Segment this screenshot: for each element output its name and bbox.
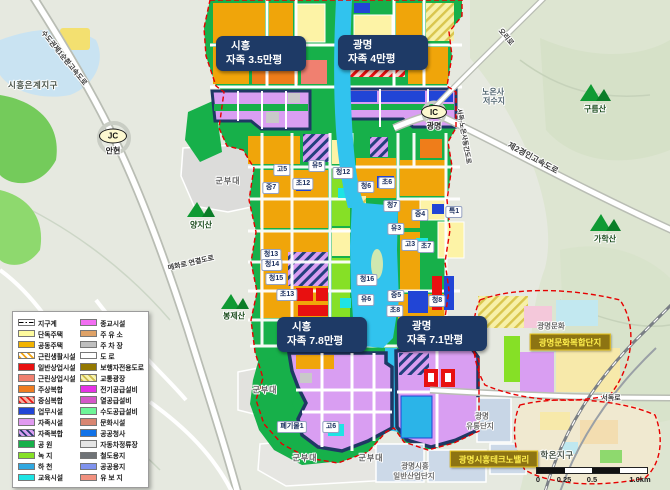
legend-swatch bbox=[18, 319, 35, 327]
legend-item: 근린상업시설 bbox=[18, 372, 76, 383]
legend-label: 지구계 bbox=[38, 318, 57, 328]
legend-item: 보행자전용도로 bbox=[80, 361, 144, 372]
zone-label: 청12 bbox=[332, 167, 353, 179]
junction-badge-jc: JC bbox=[99, 129, 127, 144]
legend-item: 교통광장 bbox=[80, 372, 144, 383]
legend-swatch bbox=[80, 407, 97, 415]
legend-item: 자동차정류장 bbox=[80, 439, 144, 450]
legend-item: 공공청사 bbox=[80, 428, 144, 439]
zone-label: 초13 bbox=[276, 289, 297, 301]
mountain-name: 가학산 bbox=[594, 234, 616, 245]
callout-city: 시흥 bbox=[292, 320, 357, 334]
legend-label: 공공청사 bbox=[100, 428, 125, 438]
zone-label: 유3 bbox=[387, 223, 404, 235]
callout-city: 광명 bbox=[412, 319, 477, 333]
legend-panel: 지구계 단독주택 공동주택 근린생활시설 일반상업시설 근린상업시설 주상복합 … bbox=[12, 311, 149, 488]
callout-city: 시흥 bbox=[231, 39, 296, 53]
legend-swatch bbox=[18, 396, 35, 404]
legend-item: 주 유 소 bbox=[80, 328, 144, 339]
zone-label: 초12 bbox=[292, 178, 313, 190]
legend-label: 자족시설 bbox=[38, 417, 63, 427]
zone-label: 유5 bbox=[308, 160, 325, 172]
zone-label: 초8 bbox=[386, 305, 403, 317]
legend-label: 자동차정류장 bbox=[100, 439, 138, 449]
place-label-culture: 광명문화 bbox=[537, 321, 565, 332]
legend-label: 철도용지 bbox=[100, 450, 125, 460]
legend-label: 보행자전용도로 bbox=[100, 362, 144, 372]
legend-label: 전기공급설비 bbox=[100, 384, 138, 394]
map-canvas: 고5 유5 청12 중7 초12 청6 초6 청7 중4 특1 유3 고3 초7… bbox=[0, 0, 670, 490]
zone-label: 중7 bbox=[262, 182, 279, 194]
scale-segment bbox=[565, 468, 593, 473]
scale-segment bbox=[620, 468, 648, 473]
place-label-logistics: 유통단지 bbox=[466, 421, 494, 432]
legend-swatch bbox=[18, 429, 35, 437]
zone-label: 청7 bbox=[383, 200, 400, 212]
legend-swatch bbox=[18, 330, 35, 338]
legend-swatch bbox=[80, 429, 97, 437]
legend-item: 유 보 지 bbox=[80, 472, 144, 483]
zone-label: 고5 bbox=[273, 164, 290, 176]
legend-label: 유 보 지 bbox=[100, 472, 123, 482]
legend-swatch bbox=[80, 363, 97, 371]
legend-label: 단독주택 bbox=[38, 329, 63, 339]
legend-swatch bbox=[80, 352, 97, 360]
callout-city: 광명 bbox=[353, 38, 418, 52]
place-label-military: 군부대 bbox=[292, 453, 317, 464]
legend-swatch bbox=[18, 418, 35, 426]
legend-item: 수도공급설비 bbox=[80, 406, 144, 417]
legend-item: 철도용지 bbox=[80, 450, 144, 461]
road-label-seodok-ro: 서독로 bbox=[601, 393, 620, 403]
legend-column-left: 지구계 단독주택 공동주택 근린생활시설 일반상업시설 근린상업시설 주상복합 … bbox=[18, 317, 76, 483]
zone-label: 초6 bbox=[378, 177, 395, 189]
legend-column-right: 종교시설 주 유 소 주 차 장 도 로 보행자전용도로 교통광장 전기공급설비… bbox=[80, 317, 144, 483]
zone-label: 특1 bbox=[445, 206, 462, 218]
zone-label: 고3 bbox=[401, 239, 418, 251]
zone-label: 중4 bbox=[411, 209, 428, 221]
legend-label: 녹 지 bbox=[38, 450, 52, 460]
legend-label: 도 로 bbox=[100, 351, 114, 361]
legend-swatch bbox=[80, 463, 97, 471]
legend-item: 하 천 bbox=[18, 461, 76, 472]
place-label-hakon: 학온지구 bbox=[540, 449, 573, 461]
legend-label: 종교시설 bbox=[100, 318, 125, 328]
legend-item: 전기공급설비 bbox=[80, 383, 144, 394]
legend-item: 일반상업시설 bbox=[18, 361, 76, 372]
zone-label: 청14 bbox=[261, 259, 282, 271]
callout-area: 자족 4만평 bbox=[348, 52, 418, 66]
legend-label: 근린상업시설 bbox=[38, 373, 76, 383]
legend-item: 공 원 bbox=[18, 439, 76, 450]
scale-label: 1.0km bbox=[629, 475, 650, 484]
legend-item: 중심복합 bbox=[18, 394, 76, 405]
scale-segment bbox=[537, 468, 565, 473]
callout-area: 자족 3.5만평 bbox=[226, 53, 296, 67]
legend-swatch bbox=[80, 374, 97, 382]
scale-label: 0 bbox=[536, 475, 540, 484]
badge-techno-valley: 광명시흥테크노밸리 bbox=[450, 451, 538, 468]
place-label-reservoir: 저수지 bbox=[483, 96, 505, 107]
legend-label: 업무시설 bbox=[38, 406, 63, 416]
legend-swatch bbox=[18, 407, 35, 415]
legend-swatch bbox=[18, 452, 35, 460]
scale-bar-labels: 0 0.25 0.5 1.0km bbox=[536, 474, 648, 484]
scale-segment bbox=[592, 468, 620, 473]
legend-label: 열공급설비 bbox=[100, 395, 131, 405]
legend-swatch bbox=[18, 463, 35, 471]
junction-name: 안현 bbox=[106, 146, 121, 157]
zone-label: 청6 bbox=[357, 181, 374, 193]
legend-swatch bbox=[80, 330, 97, 338]
legend-item: 열공급설비 bbox=[80, 394, 144, 405]
south-zone-siheung bbox=[289, 353, 392, 451]
legend-label: 교통광장 bbox=[100, 373, 125, 383]
legend-label: 하 천 bbox=[38, 461, 52, 471]
legend-item: 공동주택 bbox=[18, 339, 76, 350]
legend-item: 자족복합 bbox=[18, 428, 76, 439]
legend-item: 단독주택 bbox=[18, 328, 76, 339]
legend-item: 문화시설 bbox=[80, 417, 144, 428]
legend-swatch bbox=[18, 341, 35, 349]
legend-item: 녹 지 bbox=[18, 450, 76, 461]
legend-item: 자족시설 bbox=[18, 417, 76, 428]
junction-badge-ic: IC bbox=[421, 105, 447, 119]
legend-item: 종교시설 bbox=[80, 317, 144, 328]
legend-item: 공공용지 bbox=[80, 461, 144, 472]
place-label-military: 군부대 bbox=[252, 385, 277, 396]
callout-gwangmyeong-south: 광명 자족 7.1만평 bbox=[397, 316, 487, 351]
zone-label: 폐기물1 bbox=[277, 421, 307, 433]
legend-label: 주 유 소 bbox=[100, 329, 123, 339]
legend-swatch bbox=[18, 440, 35, 448]
scale-label: 0.25 bbox=[557, 475, 572, 484]
legend-item: 교육시설 bbox=[18, 472, 76, 483]
legend-label: 교육시설 bbox=[38, 472, 63, 482]
legend-swatch bbox=[18, 385, 35, 393]
legend-label: 자족복합 bbox=[38, 428, 63, 438]
zone-label: 초7 bbox=[417, 241, 434, 253]
legend-label: 공 원 bbox=[38, 439, 52, 449]
legend-swatch bbox=[80, 341, 97, 349]
callout-siheung-south: 시흥 자족 7.8만평 bbox=[277, 317, 367, 352]
badge-culture-complex: 광명문화복합단지 bbox=[530, 334, 611, 351]
south-zone-gwangmyeong bbox=[396, 345, 478, 447]
legend-label: 근린생활시설 bbox=[38, 351, 76, 361]
legend-label: 문화시설 bbox=[100, 417, 125, 427]
callout-area: 자족 7.8만평 bbox=[287, 334, 357, 348]
legend-swatch bbox=[80, 396, 97, 404]
junction-code: IC bbox=[430, 108, 438, 117]
callout-gwangmyeong-north: 광명 자족 4만평 bbox=[338, 35, 428, 70]
place-label-industrial: 일반산업단지 bbox=[393, 471, 434, 482]
legend-label: 공공용지 bbox=[100, 461, 125, 471]
scale-bar: 0 0.25 0.5 1.0km bbox=[536, 467, 648, 484]
legend-swatch bbox=[18, 363, 35, 371]
legend-swatch bbox=[80, 418, 97, 426]
mountain-name: 구름산 bbox=[584, 104, 606, 115]
legend-label: 일반상업시설 bbox=[38, 362, 76, 372]
legend-item: 도 로 bbox=[80, 350, 144, 361]
legend-item: 업무시설 bbox=[18, 406, 76, 417]
legend-swatch bbox=[18, 352, 35, 360]
zone-label: 청15 bbox=[265, 273, 286, 285]
junction-name: 광명 bbox=[427, 121, 442, 132]
place-label-military: 군부대 bbox=[215, 176, 240, 187]
scale-bar-segments bbox=[536, 467, 648, 474]
legend-item: 지구계 bbox=[18, 317, 76, 328]
legend-item: 근린생활시설 bbox=[18, 350, 76, 361]
legend-swatch bbox=[80, 452, 97, 460]
legend-swatch bbox=[80, 440, 97, 448]
place-label-eungye: 시흥은계지구 bbox=[8, 79, 58, 91]
zone-label: 유6 bbox=[357, 294, 374, 306]
scale-label: 0.5 bbox=[587, 475, 597, 484]
mountain-name: 양지산 bbox=[190, 220, 212, 231]
legend-swatch bbox=[18, 474, 35, 482]
callout-area: 자족 7.1만평 bbox=[407, 333, 477, 347]
zone-label: 청16 bbox=[356, 274, 377, 286]
legend-item: 주상복합 bbox=[18, 383, 76, 394]
legend-label: 공동주택 bbox=[38, 340, 63, 350]
mountain-name: 봉제산 bbox=[223, 311, 245, 322]
legend-label: 중심복합 bbox=[38, 395, 63, 405]
legend-swatch bbox=[80, 474, 97, 482]
legend-label: 주상복합 bbox=[38, 384, 63, 394]
place-label-military: 군부대 bbox=[358, 453, 383, 464]
legend-label: 수도공급설비 bbox=[100, 406, 138, 416]
legend-label: 주 차 장 bbox=[100, 340, 123, 350]
legend-swatch bbox=[80, 385, 97, 393]
zone-label: 중5 bbox=[387, 290, 404, 302]
legend-swatch bbox=[80, 319, 97, 327]
zone-label: 청8 bbox=[428, 295, 445, 307]
legend-item: 주 차 장 bbox=[80, 339, 144, 350]
legend-swatch bbox=[18, 374, 35, 382]
junction-code: JC bbox=[108, 132, 118, 141]
callout-siheung-north: 시흥 자족 3.5만평 bbox=[216, 36, 306, 71]
zone-label: 고6 bbox=[322, 421, 339, 433]
